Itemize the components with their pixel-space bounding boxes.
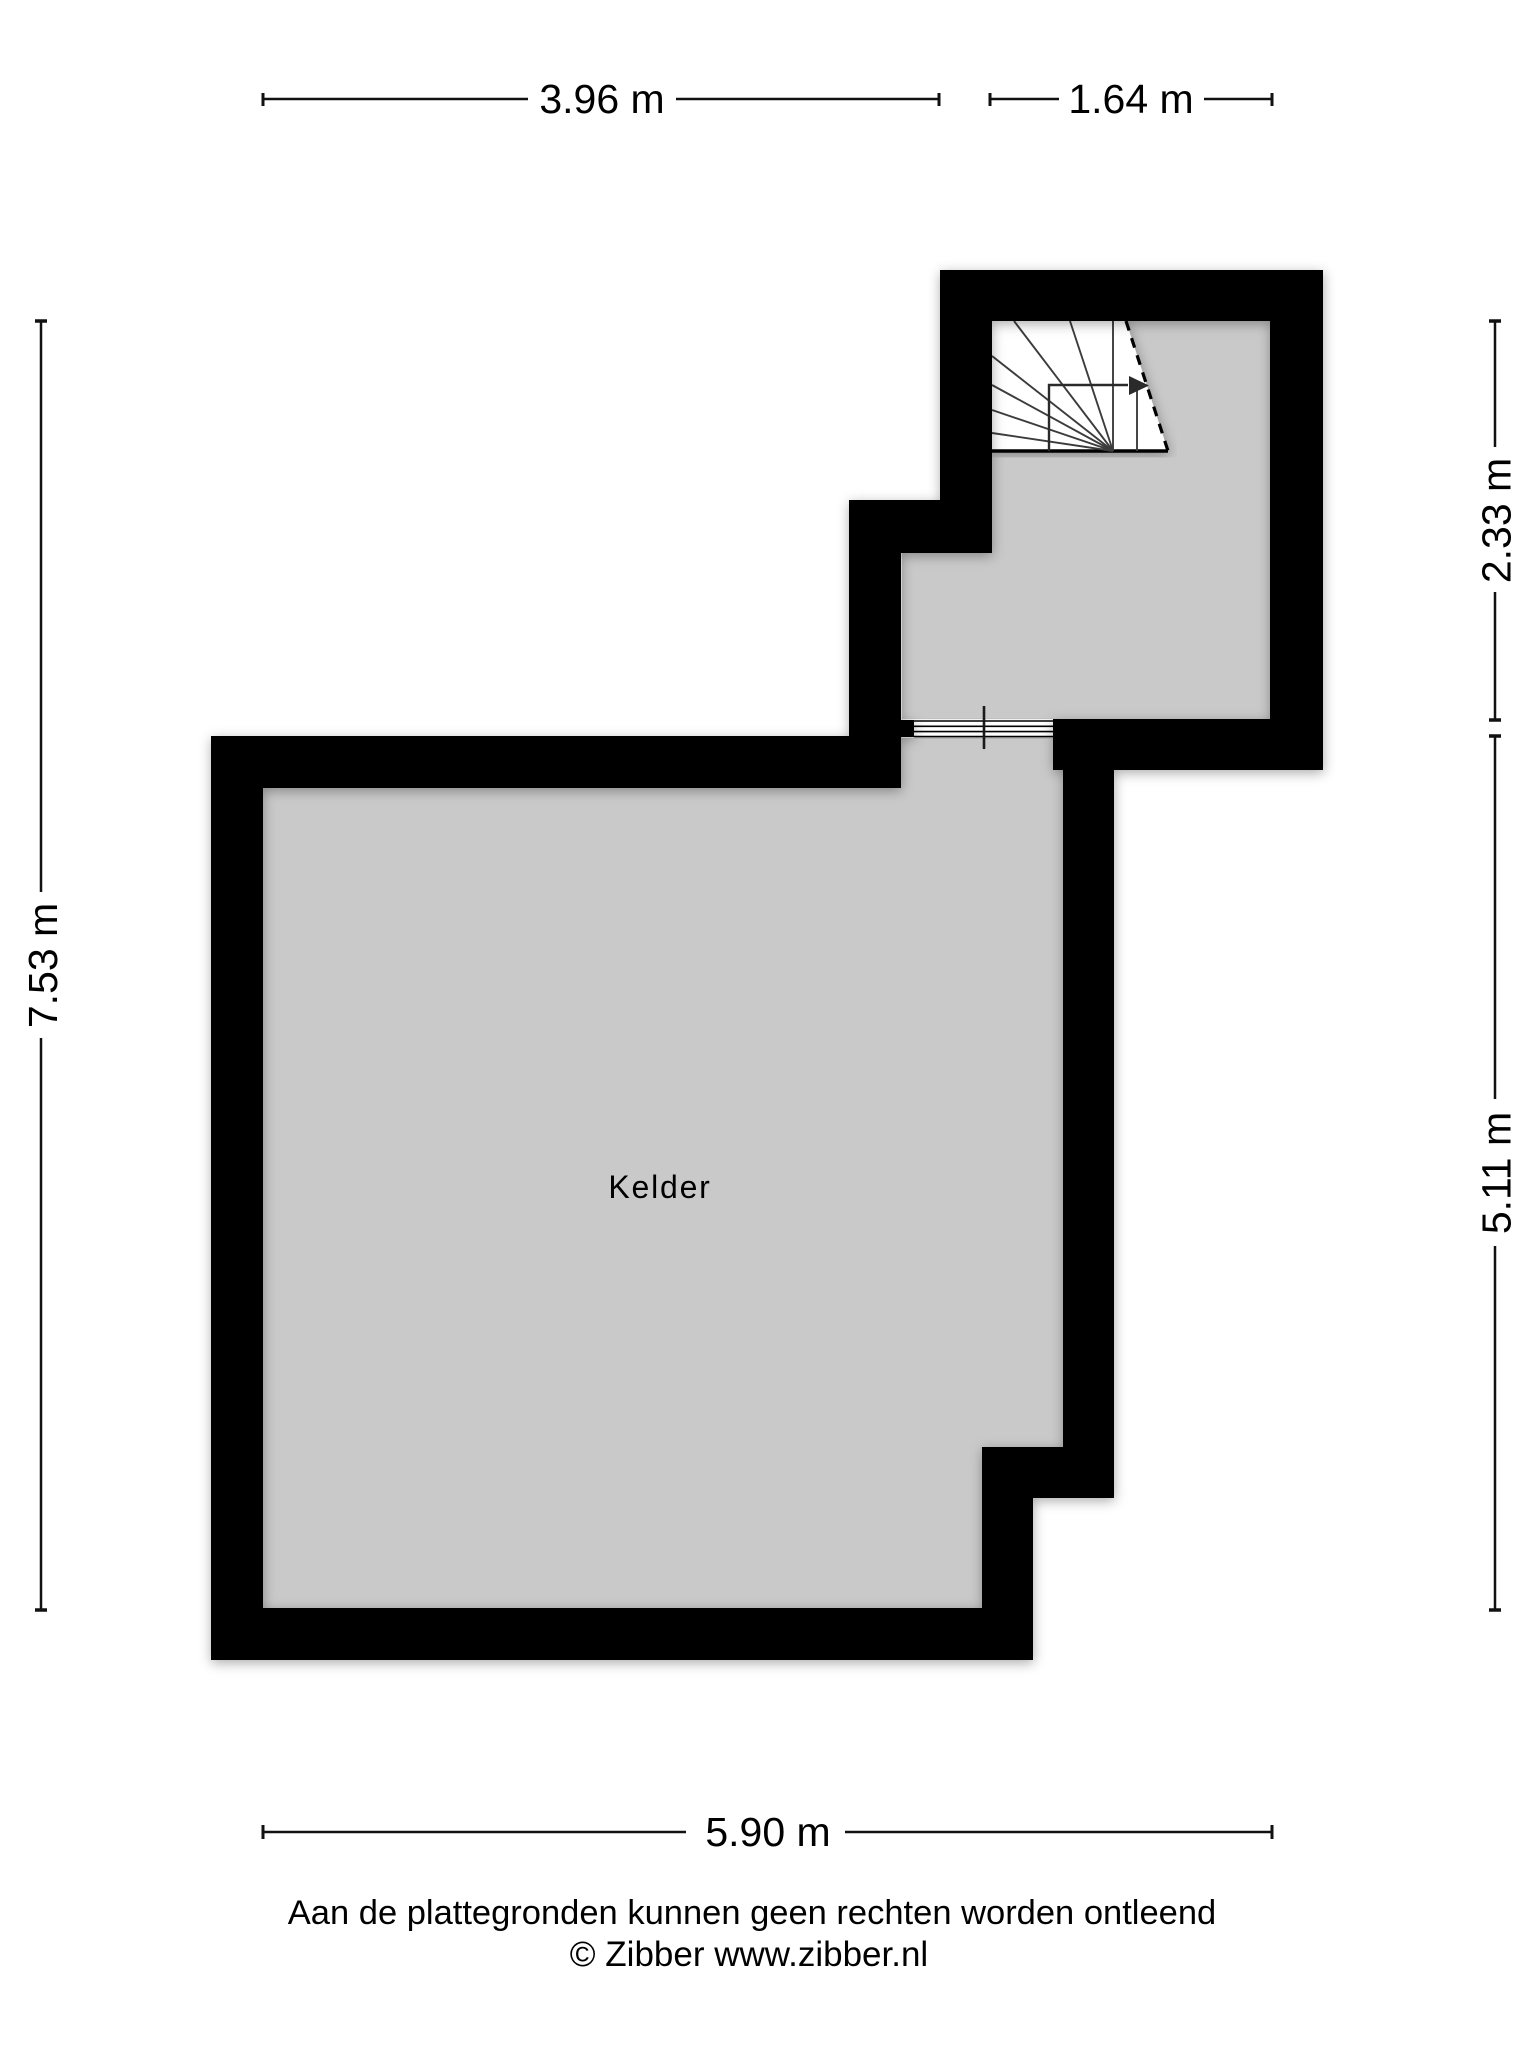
svg-text:5.90 m: 5.90 m <box>705 1809 830 1855</box>
svg-text:© Zibber www.zibber.nl: © Zibber www.zibber.nl <box>570 1935 928 1974</box>
svg-text:5.11 m: 5.11 m <box>1474 1112 1520 1234</box>
svg-text:7.53 m: 7.53 m <box>20 903 66 1028</box>
svg-text:3.96 m: 3.96 m <box>539 76 664 122</box>
svg-text:Kelder: Kelder <box>608 1169 711 1205</box>
svg-text:Aan de plattegronden kunnen ge: Aan de plattegronden kunnen geen rechten… <box>288 1894 1216 1932</box>
svg-text:1.64 m: 1.64 m <box>1068 76 1193 122</box>
svg-text:2.33 m: 2.33 m <box>1474 458 1520 583</box>
